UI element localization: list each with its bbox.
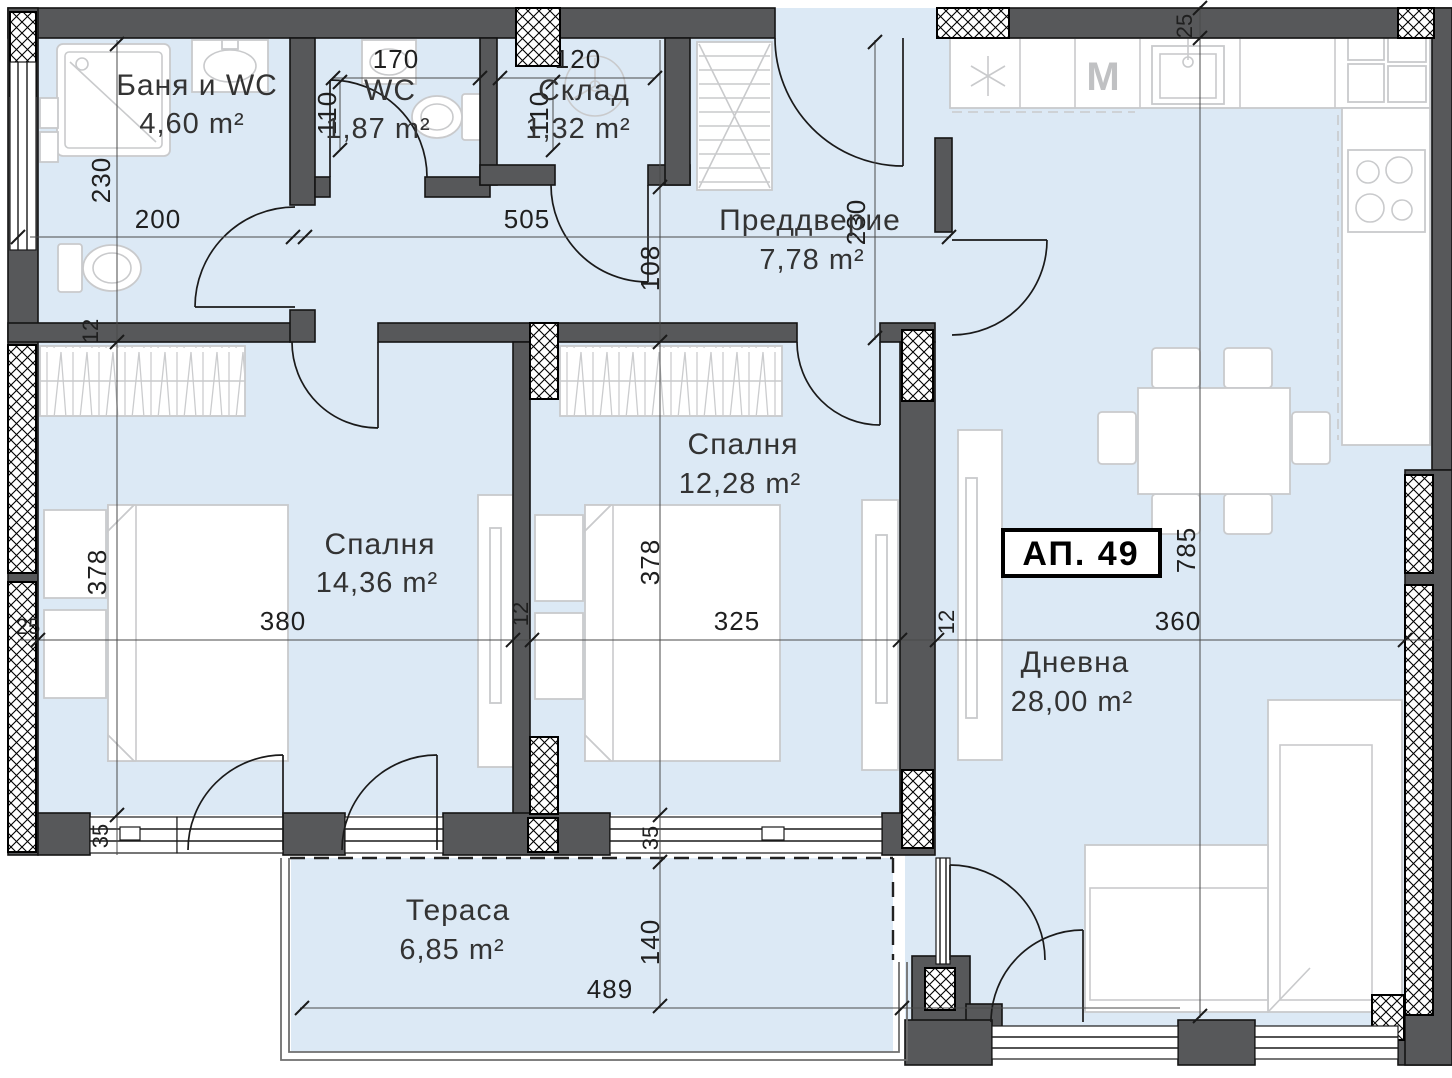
bedroom2-tv-unit	[862, 500, 898, 770]
column-hatch	[516, 8, 560, 66]
threshold	[555, 165, 648, 185]
bottom-wall	[1178, 1020, 1255, 1065]
bedroom1-terrace-door-glazing	[345, 817, 443, 853]
nightstand	[535, 515, 583, 601]
column-hatch	[1405, 475, 1433, 573]
column-hatch	[8, 345, 36, 573]
bedroom-divider-wall	[513, 342, 530, 815]
dim-bed2-height: 378	[635, 539, 665, 585]
room-area-living: 28,00 m²	[1011, 686, 1133, 718]
chair	[1224, 348, 1272, 388]
threshold	[797, 323, 880, 342]
room-label-storage: Склад	[538, 74, 630, 107]
window-handle	[120, 827, 140, 840]
pier	[38, 813, 90, 855]
bottom-wall	[905, 1020, 992, 1065]
living-tv-unit	[958, 430, 1002, 760]
room-label-terrace: Тераса	[406, 894, 510, 927]
pier	[443, 813, 610, 855]
pier	[283, 813, 345, 855]
storage-south-wall	[480, 165, 555, 185]
column-hatch	[530, 323, 558, 399]
threshold	[775, 8, 937, 38]
column-hatch	[528, 818, 558, 852]
corridor-wall	[8, 323, 292, 342]
dim-sill-left: 35	[88, 824, 113, 848]
threshold	[290, 205, 315, 310]
room-label-bedroom2: Спалня	[688, 428, 799, 461]
terrace-floor	[291, 858, 893, 1052]
dim-sklad-width: 120	[555, 44, 601, 74]
chair	[1224, 494, 1272, 534]
top-wall	[8, 8, 775, 38]
wc-south-wall	[315, 177, 330, 197]
bedroom2-east-wall	[900, 342, 935, 815]
kitchen-sink-icon	[1152, 38, 1224, 104]
window-handle	[762, 827, 784, 840]
column-hatch	[937, 8, 1009, 38]
bedroom2-wardrobe	[560, 346, 782, 416]
room-label-living: Дневна	[1021, 646, 1130, 679]
hall-floor	[315, 197, 490, 323]
dim-bed1-height: 378	[82, 549, 112, 595]
dim-right-wall: 12	[934, 610, 959, 634]
bath-toilet-icon	[58, 244, 141, 292]
apartment-badge: АП. 49	[1003, 530, 1160, 576]
room-area-bedroom1: 14,36 m²	[316, 567, 438, 599]
dim-terrace-width: 489	[587, 974, 633, 1004]
chair	[1292, 412, 1330, 464]
floor-plan-page: M	[0, 0, 1452, 1078]
storage-west-wall	[480, 38, 497, 185]
washing-machine-symbol: M	[1086, 55, 1119, 99]
living-west-wall	[935, 138, 952, 232]
dim-left-wall: 25	[16, 614, 40, 639]
right-wall	[1432, 8, 1452, 470]
room-area-terrace: 6,85 m²	[399, 934, 504, 966]
room-label-bedroom1: Спалня	[325, 528, 436, 561]
room-area-bedroom2: 12,28 m²	[679, 468, 801, 500]
bath-east-wall	[290, 310, 315, 342]
apartment-number: АП. 49	[1022, 535, 1139, 573]
nightstand	[535, 613, 583, 699]
dim-hall-width: 505	[504, 204, 550, 234]
living-window-1	[992, 1026, 1178, 1059]
room-label-hall: Преддверие	[719, 204, 901, 237]
hall-wardrobe	[697, 42, 772, 190]
threshold	[935, 232, 952, 330]
nightstand	[44, 610, 106, 698]
column-hatch	[530, 737, 558, 814]
dim-living-height: 785	[1171, 527, 1201, 573]
stove-icon	[1348, 150, 1425, 232]
bedroom1-tv-unit	[478, 495, 513, 767]
column-hatch	[1398, 8, 1434, 38]
column-hatch	[925, 968, 955, 1010]
dim-wc-width: 170	[373, 44, 419, 74]
dim-bath-width: 200	[135, 204, 181, 234]
corridor-wall	[378, 323, 797, 342]
threshold	[330, 177, 425, 197]
column-hatch	[902, 330, 933, 401]
room-area-bathroom: 4,60 m²	[139, 108, 244, 140]
dim-living-width: 360	[1155, 606, 1201, 636]
dim-terrace-depth: 140	[635, 919, 665, 965]
chair	[1152, 348, 1200, 388]
room-label-bathroom: Баня и WC	[116, 69, 278, 102]
column-hatch	[902, 770, 933, 848]
dim-bath-wall: 12	[78, 319, 103, 343]
floor-plan-drawing: M	[0, 0, 1452, 1078]
shower-icon	[40, 44, 170, 162]
dim-top-wall: 25	[1172, 14, 1197, 38]
storage-east-wall	[665, 38, 690, 185]
bathroom-window	[10, 62, 36, 250]
bedroom1-wardrobe	[40, 346, 245, 416]
dim-hall-corridor: 108	[635, 245, 665, 291]
dim-mid-wall: 12	[508, 602, 533, 626]
dim-sill-mid: 35	[638, 826, 663, 850]
room-area-wc: 1,87 m²	[325, 113, 430, 145]
living-window-2	[1255, 1026, 1398, 1059]
room-label-wc: WC	[364, 74, 416, 107]
column-hatch	[1405, 585, 1433, 1015]
dim-bed1-width: 380	[260, 606, 306, 636]
dim-bath-height: 230	[86, 157, 116, 203]
room-area-hall: 7,78 m²	[759, 244, 864, 276]
living-terrace-window	[936, 858, 950, 964]
room-area-storage: 1,32 m²	[525, 113, 630, 145]
chair	[1098, 412, 1136, 464]
dim-bed2-width: 325	[714, 606, 760, 636]
